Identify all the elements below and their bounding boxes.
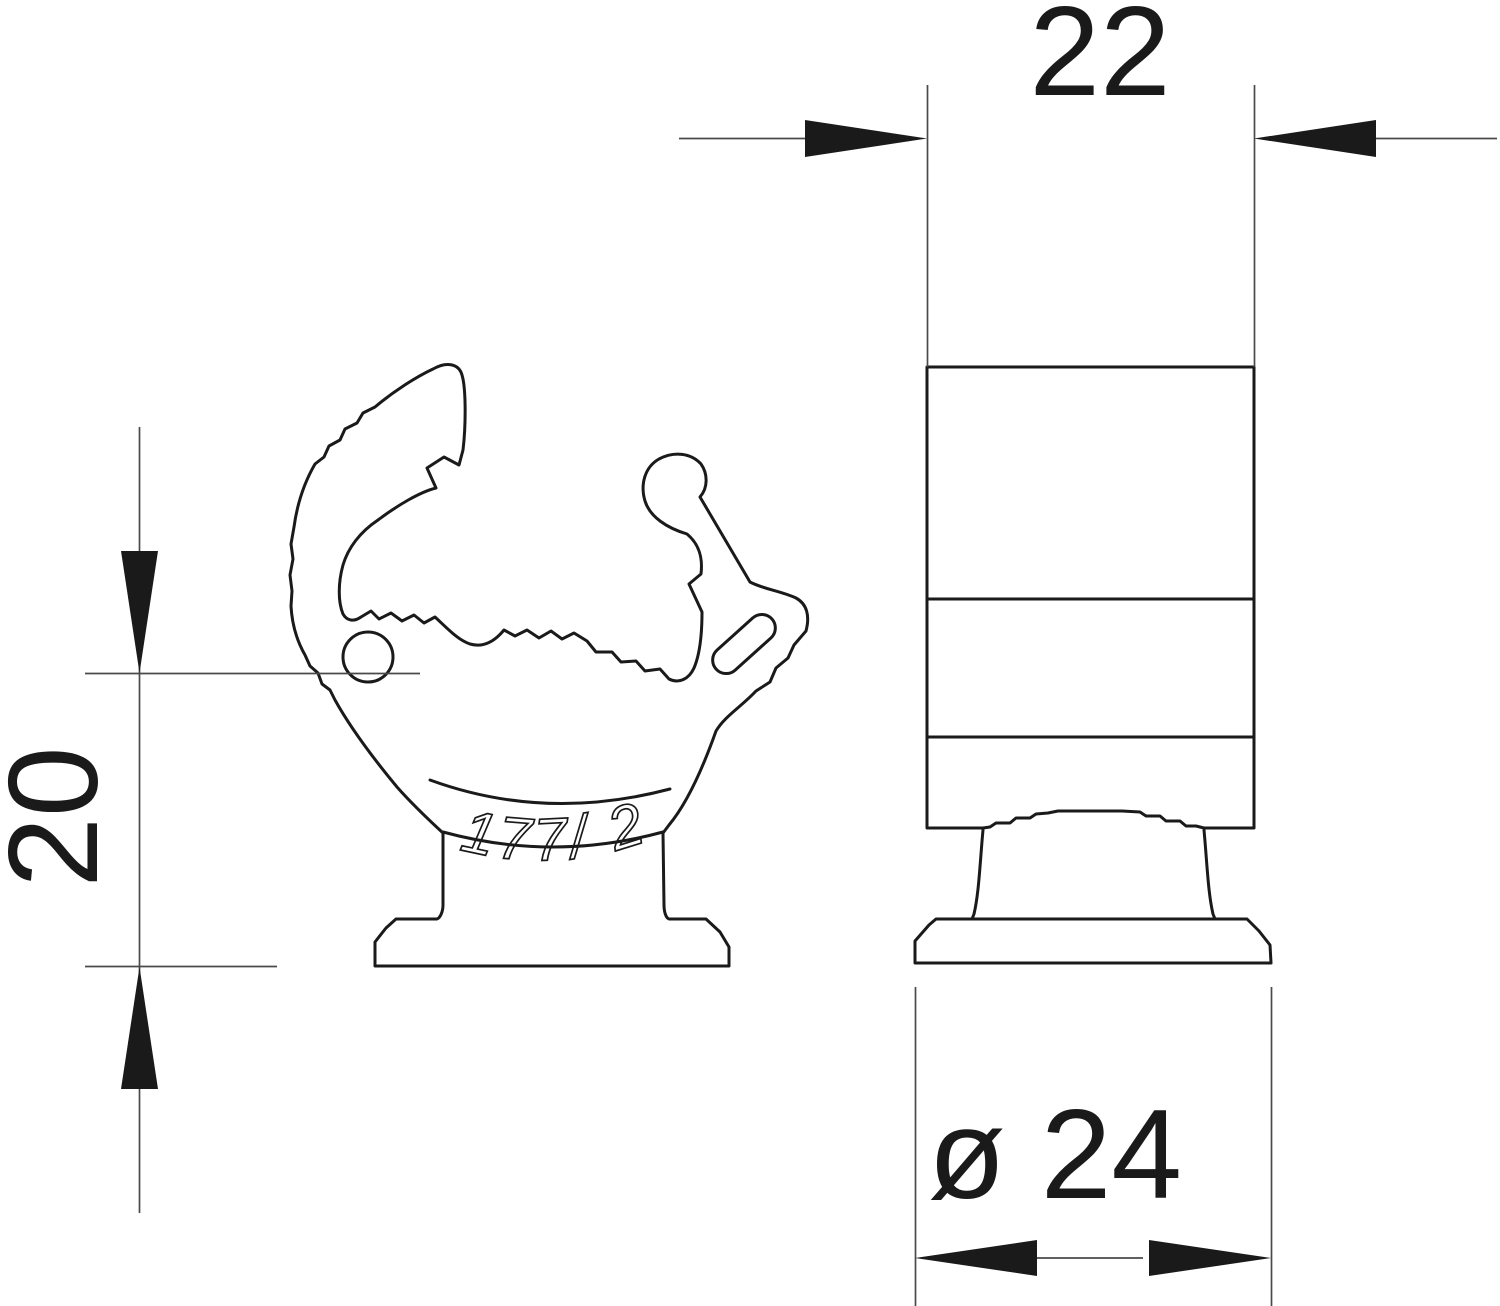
dim-height-label: 20: [0, 746, 124, 887]
dimension-top-width: 22: [679, 0, 1497, 367]
side-flange-outline: [915, 919, 1271, 963]
side-neck-right-edge: [1204, 830, 1215, 919]
arrow-left-icon: [915, 1240, 1037, 1276]
product-marking: 177/ 20: [0, 0, 656, 874]
arrow-down-icon: [121, 551, 158, 673]
dim-width-label: 22: [1029, 0, 1170, 122]
dim-diameter-label: ø 24: [928, 1083, 1182, 1225]
dimension-base-diameter: ø 24: [915, 987, 1272, 1306]
side-neck-left-edge: [972, 830, 983, 919]
clip-hole: [343, 632, 393, 682]
product-marking-text: 177/ 20: [0, 0, 656, 874]
clip-slot: [707, 609, 781, 679]
technical-drawing: 177/ 20 22 20: [0, 0, 1500, 1306]
clip-outline: [290, 364, 808, 966]
arrow-left-icon: [1254, 120, 1376, 157]
arrow-right-icon: [1149, 1240, 1271, 1276]
side-view: [915, 367, 1271, 963]
arrow-up-icon: [121, 967, 158, 1089]
dimension-left-height: 20: [0, 427, 420, 1213]
arrow-right-icon: [805, 120, 927, 157]
